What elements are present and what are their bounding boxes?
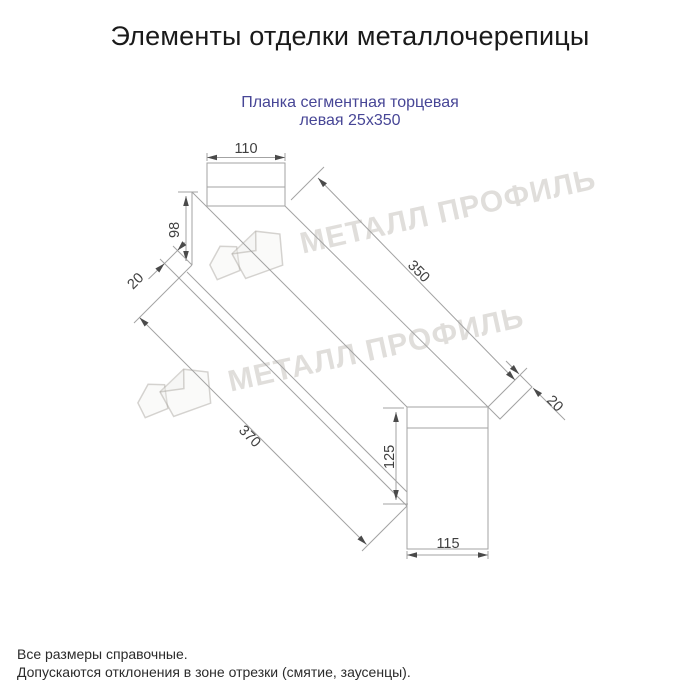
hem-fold-line — [187, 272, 407, 492]
left-hem-edge — [179, 265, 192, 278]
part-outline — [179, 163, 532, 549]
footnotes: Все размеры справочные. Допускаются откл… — [17, 646, 411, 681]
dim-label-350: 350 — [404, 258, 432, 286]
footnote-line2: Допускаются отклонения в зоне отрезки (с… — [17, 664, 411, 682]
catalog-page: Элементы отделки металлочерепицы Планка … — [0, 0, 700, 700]
dim-label-98: 98 — [167, 222, 183, 238]
cap-face — [207, 163, 285, 206]
footnote-line1: Все размеры справочные. — [17, 646, 411, 664]
dim-label-370: 370 — [235, 423, 263, 451]
dim-label-125: 125 — [382, 445, 398, 469]
dim-label-20-right: 20 — [543, 393, 566, 416]
bottom-edge — [179, 278, 407, 506]
right-hem-extension — [520, 368, 527, 375]
dim-label-110: 110 — [234, 141, 257, 157]
dim-line-20-right — [506, 361, 519, 374]
ridge-edge — [192, 192, 407, 407]
dim-label-20-left: 20 — [125, 270, 148, 293]
dimension-labels: 110 98 20 350 20 370 125 115 — [125, 141, 566, 552]
upper-face-edge — [285, 206, 488, 407]
dim-label-115: 115 — [436, 536, 459, 552]
dimension-lines — [134, 153, 565, 559]
technical-drawing: 110 98 20 350 20 370 125 115 — [0, 0, 700, 700]
dim-line-20-left — [178, 243, 186, 251]
right-hem-tab — [488, 375, 532, 419]
